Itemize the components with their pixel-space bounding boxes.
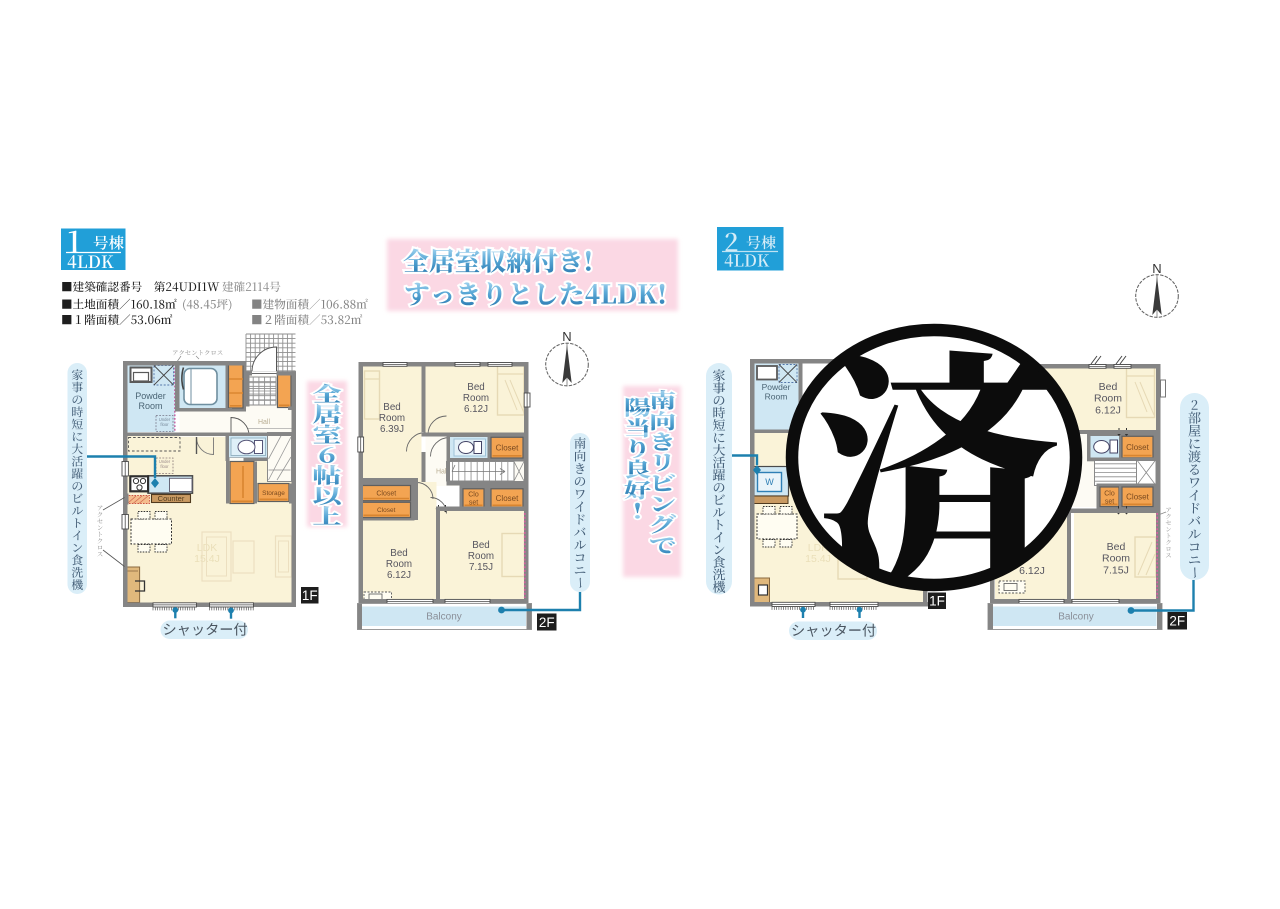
svg-text:Closet: Closet bbox=[496, 494, 519, 503]
svg-text:floor: floor bbox=[160, 422, 169, 427]
svg-text:N: N bbox=[562, 329, 571, 344]
svg-text:7.15J: 7.15J bbox=[469, 562, 493, 573]
svg-text:W: W bbox=[765, 477, 774, 487]
svg-text:6.12J: 6.12J bbox=[1095, 404, 1121, 416]
svg-text:Balcony: Balcony bbox=[426, 612, 462, 623]
svg-text:6.39J: 6.39J bbox=[380, 424, 404, 435]
svg-text:Room: Room bbox=[138, 401, 162, 411]
svg-text:1F: 1F bbox=[302, 588, 318, 603]
svg-text:N: N bbox=[1152, 261, 1161, 276]
svg-text:Balcony: Balcony bbox=[1058, 612, 1094, 623]
svg-text:2F: 2F bbox=[1169, 614, 1185, 629]
svg-text:Bed: Bed bbox=[383, 402, 400, 413]
svg-text:Closet: Closet bbox=[377, 507, 396, 514]
svg-text:7.15J: 7.15J bbox=[1103, 564, 1129, 576]
svg-text:6.12J: 6.12J bbox=[1019, 565, 1045, 577]
svg-text:6.12J: 6.12J bbox=[387, 570, 411, 581]
svg-text:6.12J: 6.12J bbox=[464, 404, 488, 415]
svg-text:Powder: Powder bbox=[135, 391, 166, 401]
svg-text:Clo: Clo bbox=[468, 492, 479, 499]
svg-text:set: set bbox=[469, 500, 478, 507]
svg-text:Closet: Closet bbox=[1126, 443, 1149, 452]
svg-text:Clo: Clo bbox=[1104, 490, 1115, 497]
svg-text:Room: Room bbox=[379, 413, 405, 424]
svg-text:Room: Room bbox=[765, 392, 788, 402]
svg-text:Powder: Powder bbox=[762, 382, 791, 392]
svg-text:Bed: Bed bbox=[1099, 381, 1118, 393]
svg-text:Closet: Closet bbox=[496, 443, 519, 452]
svg-text:Hall: Hall bbox=[258, 419, 271, 426]
svg-text:1F: 1F bbox=[929, 593, 945, 608]
svg-text:Room: Room bbox=[386, 559, 412, 570]
svg-text:2F: 2F bbox=[539, 615, 555, 630]
svg-text:floor: floor bbox=[160, 464, 169, 469]
svg-text:15.4J: 15.4J bbox=[805, 553, 831, 565]
svg-text:Closet: Closet bbox=[376, 491, 396, 498]
svg-text:set: set bbox=[1105, 498, 1114, 505]
svg-text:Closet: Closet bbox=[1126, 493, 1149, 502]
svg-text:Room: Room bbox=[1094, 393, 1122, 405]
svg-text:Room: Room bbox=[1102, 553, 1130, 565]
svg-text:Bed: Bed bbox=[390, 548, 407, 559]
svg-text:Counter: Counter bbox=[158, 494, 185, 503]
svg-text:Storage: Storage bbox=[262, 490, 285, 497]
svg-text:Bed: Bed bbox=[467, 382, 484, 393]
svg-text:Bed: Bed bbox=[1107, 541, 1126, 553]
svg-text:Room: Room bbox=[463, 393, 489, 404]
svg-text:Room: Room bbox=[468, 551, 494, 562]
svg-text:Bed: Bed bbox=[472, 540, 489, 551]
